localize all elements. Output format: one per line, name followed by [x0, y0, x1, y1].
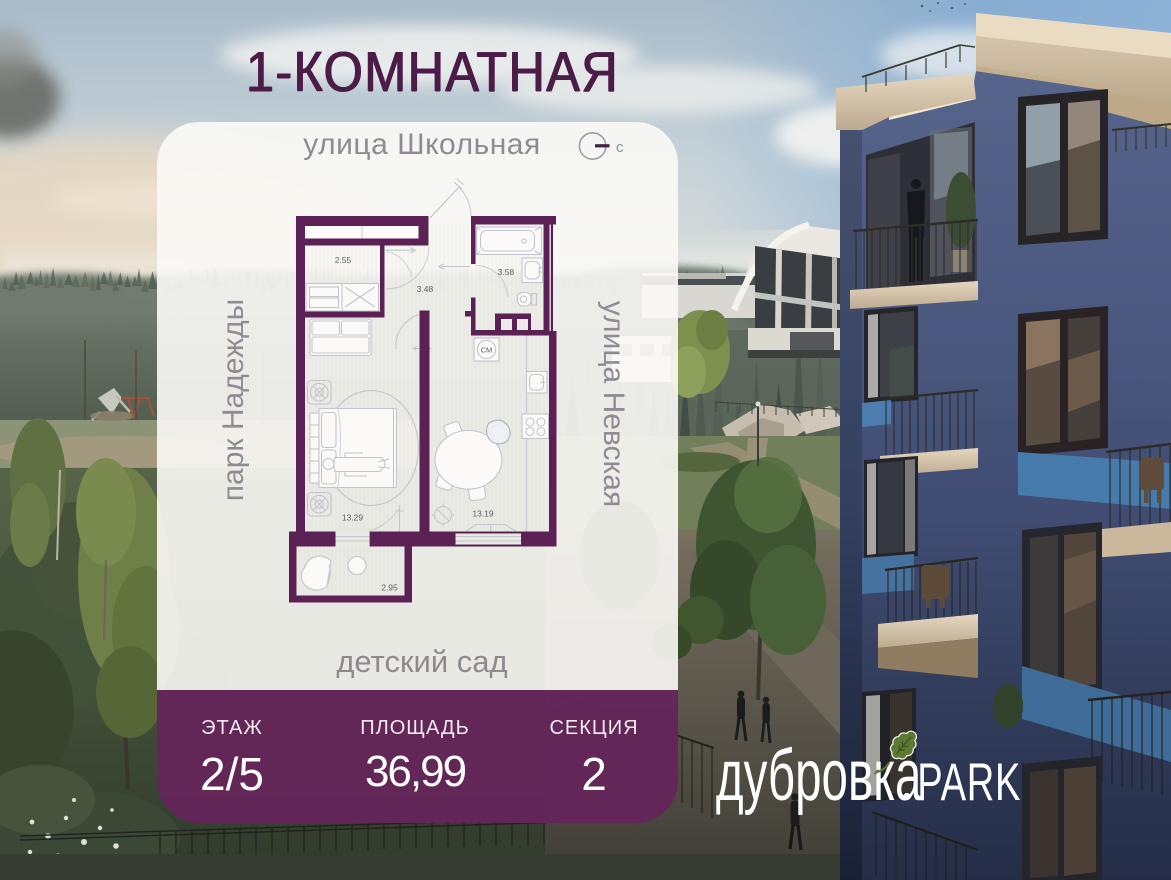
svg-text:13.19: 13.19 — [472, 509, 494, 519]
svg-text:с: с — [616, 139, 624, 156]
svg-text:13.29: 13.29 — [342, 513, 364, 523]
svg-text:3.58: 3.58 — [498, 267, 515, 277]
svg-text:3.48: 3.48 — [417, 284, 434, 294]
svg-text:2.55: 2.55 — [335, 255, 352, 265]
svg-text:PARK: PARK — [917, 752, 1021, 812]
svg-text:2.95: 2.95 — [381, 583, 398, 593]
svg-text:СМ: СМ — [481, 346, 493, 355]
